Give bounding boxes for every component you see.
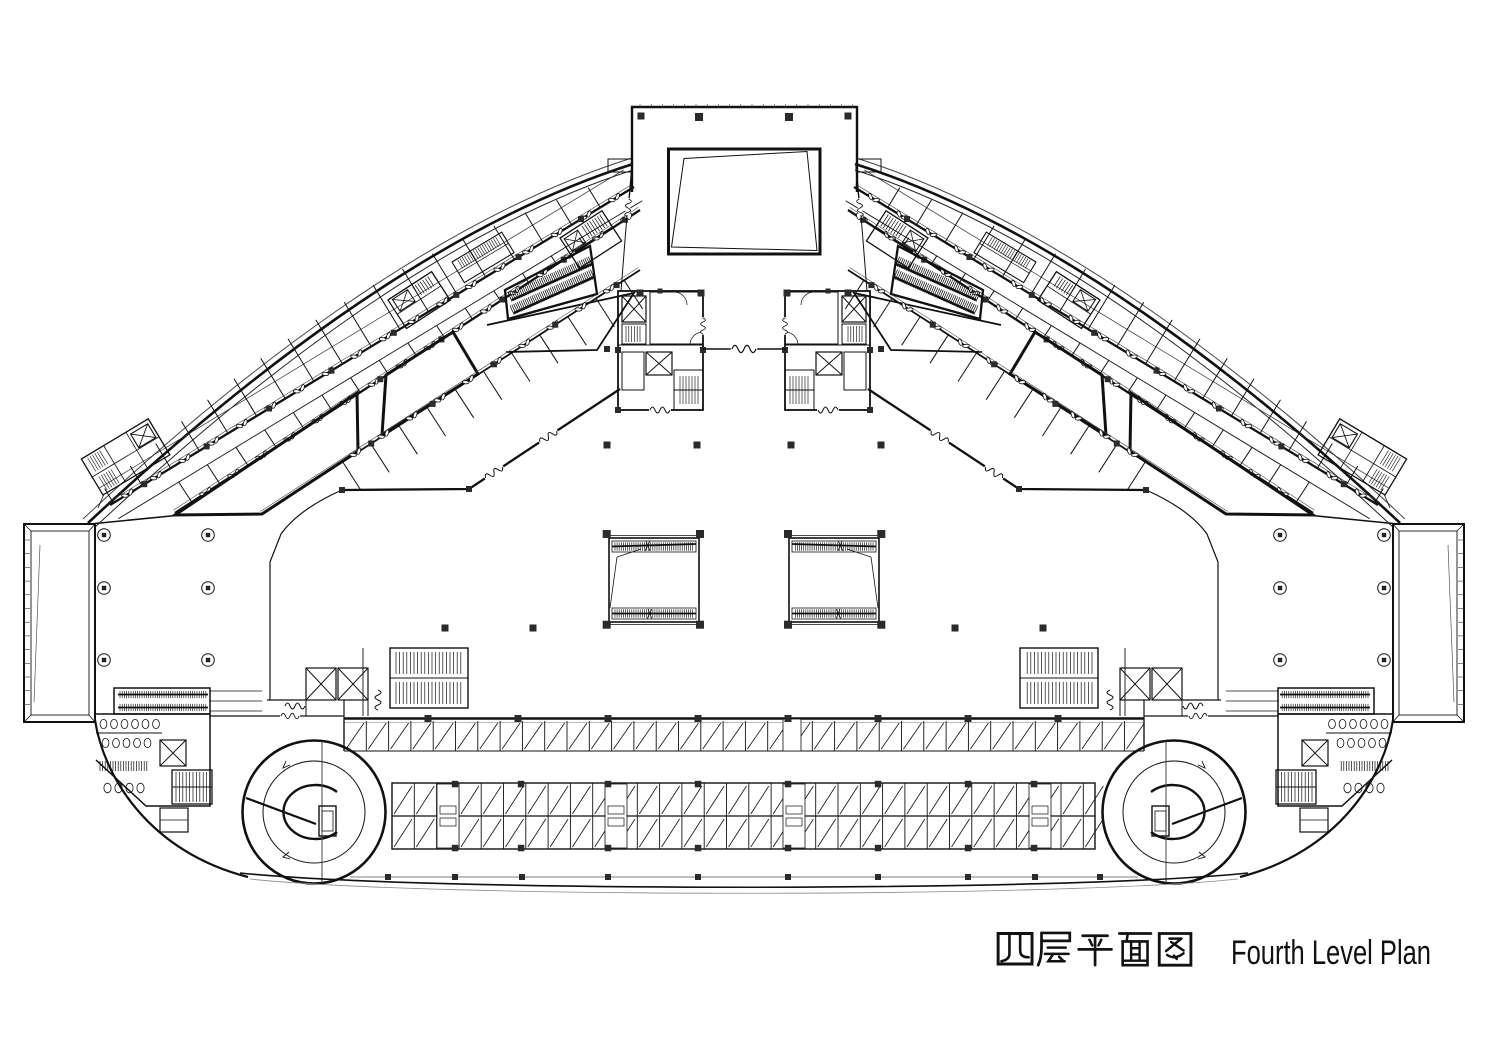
svg-text:Fourth Level Plan: Fourth Level Plan <box>1231 934 1431 972</box>
